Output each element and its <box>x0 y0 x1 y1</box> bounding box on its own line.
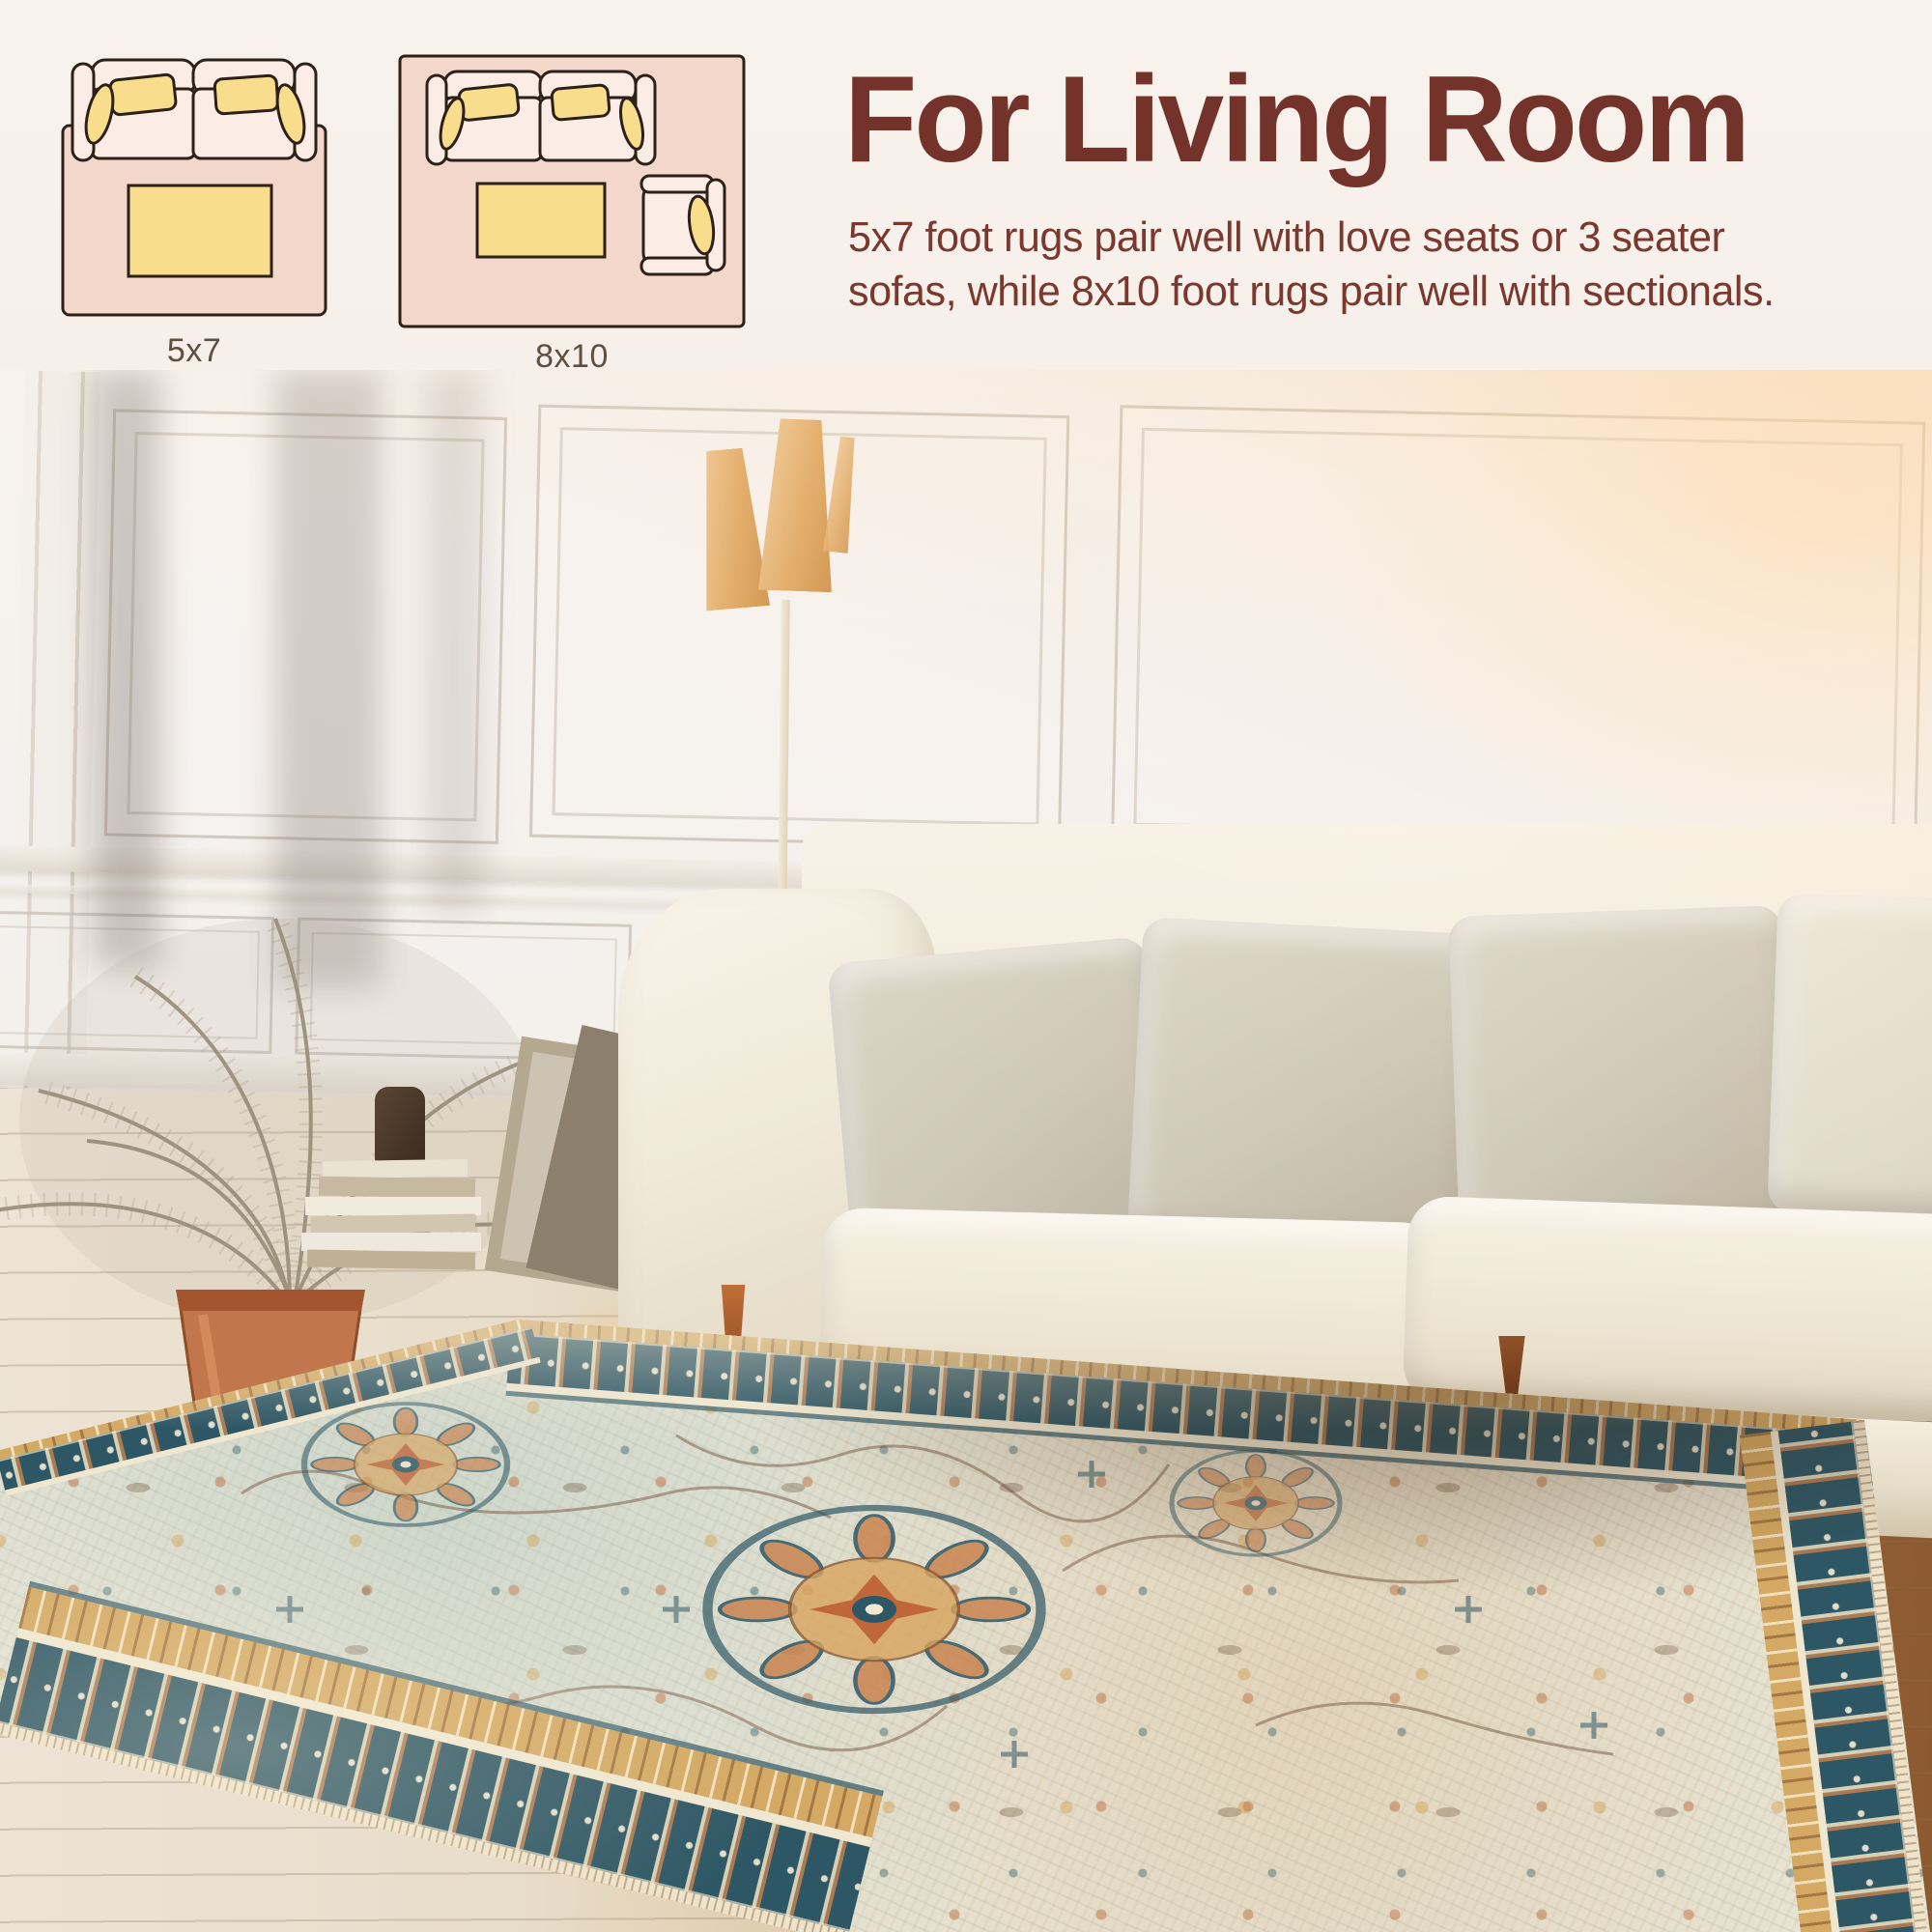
info-banner: 5x7 <box>0 0 1932 370</box>
body-copy: 5x7 foot rugs pair well with love seats … <box>848 211 1909 320</box>
diagram-coffee-table <box>128 185 271 276</box>
sofa-pillow <box>1448 905 1793 1245</box>
book <box>305 1197 481 1215</box>
rug-8x10-top-view-icon <box>394 46 750 332</box>
diagram-sofa-top-view <box>427 71 655 164</box>
sofa-seat-cushion <box>1402 1196 1932 1424</box>
decor-vase <box>375 1087 425 1166</box>
book <box>301 1233 481 1251</box>
diagram-label-5x7: 5x7 <box>53 332 335 370</box>
terracotta-pot-rim <box>176 1290 365 1311</box>
wall-panel <box>1111 405 1925 864</box>
diagram-coffee-table <box>477 184 605 257</box>
book <box>311 1214 475 1235</box>
body-copy-line-2: sofas, while 8x10 foot rugs pair well wi… <box>848 265 1909 319</box>
diagram-sofa-top-view <box>72 60 316 160</box>
book <box>319 1177 475 1199</box>
soft-shadow-streak <box>425 370 483 911</box>
rug-5x7-top-view-icon <box>53 50 335 328</box>
marketing-graphic: 5x7 <box>0 0 1932 1932</box>
page-title: For Living Room <box>844 48 1893 189</box>
living-room-photo <box>0 370 1932 1932</box>
diagram-armchair-top-view <box>641 176 724 274</box>
sofa-pillow <box>1767 894 1932 1219</box>
book <box>307 1249 475 1269</box>
body-copy-line-1: 5x7 foot rugs pair well with love seats … <box>848 211 1909 265</box>
